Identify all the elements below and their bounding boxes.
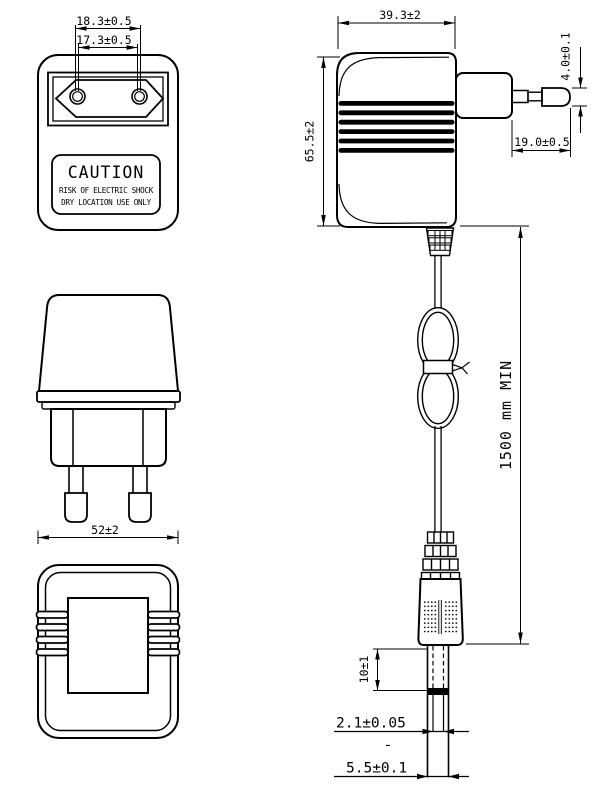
- transformer-core: [68, 598, 148, 693]
- side-body-ribs: [339, 101, 455, 153]
- side-body-bottom-contour: [339, 184, 447, 223]
- dim-body-width-label: 39.3±2: [379, 8, 421, 22]
- arrowhead: [444, 21, 455, 26]
- vent-ribs-left: [37, 612, 69, 656]
- pin-side-view: 52±2: [37, 295, 180, 544]
- plug-barrel: [427, 645, 449, 778]
- caution-title: CAUTION: [68, 163, 145, 182]
- arrowhead: [321, 215, 326, 226]
- dim-cord-length-label: 1500 mm MIN: [497, 360, 515, 470]
- dc-plug: 10±1 2.1±0.05 - 5.5±0.1: [334, 532, 469, 779]
- arrowhead: [375, 649, 380, 660]
- pin-shaft: [528, 92, 542, 101]
- tip-length-dimension: [373, 649, 427, 691]
- side-body-top-contour: [339, 57, 449, 96]
- caution-line-1: RISK OF ELECTRIC SHOCK: [59, 186, 154, 195]
- arrowhead: [38, 535, 49, 540]
- arrowhead: [449, 774, 460, 780]
- dim-pin-diameter-label: 4.0±0.1: [559, 32, 573, 81]
- dim-dash-label: -: [384, 738, 393, 754]
- cable-knot: [420, 310, 470, 426]
- body-flange-lip: [42, 402, 175, 409]
- arrowhead: [167, 535, 178, 540]
- back-view: [37, 565, 180, 738]
- pin-diameter-dimension: [572, 47, 587, 133]
- arrowhead: [578, 106, 583, 117]
- arrowhead: [375, 680, 380, 691]
- pin-sleeve: [512, 91, 528, 103]
- body-trapezoid: [39, 295, 178, 391]
- dim-outer-diameter-label: 5.5±0.1: [346, 761, 407, 777]
- arrowhead: [321, 57, 326, 68]
- dim-pin-spacing-inner-label: 17.3±0.5: [76, 33, 131, 47]
- mains-pins: [65, 466, 151, 522]
- europlug-base-side: [456, 73, 512, 118]
- europlug-base: [51, 409, 166, 466]
- arrowhead: [338, 21, 349, 26]
- dim-pin-length-label: 19.0±0.5: [514, 135, 569, 149]
- barrel-insulator-band: [427, 688, 449, 695]
- drawing-sheet: 18.3±0.5 17.3±0.5 CAUTION RISK OF ELECTR…: [0, 0, 600, 795]
- plug-strain-relief: [422, 532, 460, 579]
- cable-tie-band: [424, 361, 453, 374]
- side-view: 39.3±2 65.5±2 4.0±0.1 19.0±0.5: [303, 8, 588, 227]
- caution-label: CAUTION RISK OF ELECTRIC SHOCK DRY LOCAT…: [52, 155, 160, 214]
- pin-hole-left-inner: [73, 92, 83, 102]
- knurl-dots-left: [424, 600, 437, 634]
- dim-pin-spacing-outer-label: 18.3±0.5: [76, 14, 131, 28]
- dim-body-depth-label: 52±2: [91, 523, 119, 537]
- cord-length-dimension: [460, 226, 529, 644]
- arrowhead: [578, 78, 583, 89]
- caution-line-2: DRY LOCATION USE ONLY: [61, 198, 151, 207]
- pin-tip: [542, 88, 570, 106]
- technical-drawing: 18.3±0.5 17.3±0.5 CAUTION RISK OF ELECTR…: [0, 0, 600, 795]
- body-strain-relief: [427, 228, 454, 256]
- vent-ribs-right: [148, 612, 180, 656]
- body-flange: [37, 391, 180, 402]
- dim-tip-length-label: 10±1: [357, 656, 371, 684]
- cable-tie-tail: [453, 362, 470, 374]
- pin-hole-right-inner: [135, 92, 145, 102]
- front-view: 18.3±0.5 17.3±0.5 CAUTION RISK OF ELECTR…: [38, 14, 178, 230]
- cable-assembly: 1500 mm MIN: [420, 226, 529, 644]
- arrowhead: [518, 633, 523, 644]
- arrowhead: [518, 227, 523, 238]
- arrowhead: [417, 774, 428, 780]
- dim-inner-diameter-label: 2.1±0.05: [336, 716, 406, 732]
- knurl-dots-right: [445, 600, 458, 634]
- dim-body-height-label: 65.5±2: [303, 121, 317, 163]
